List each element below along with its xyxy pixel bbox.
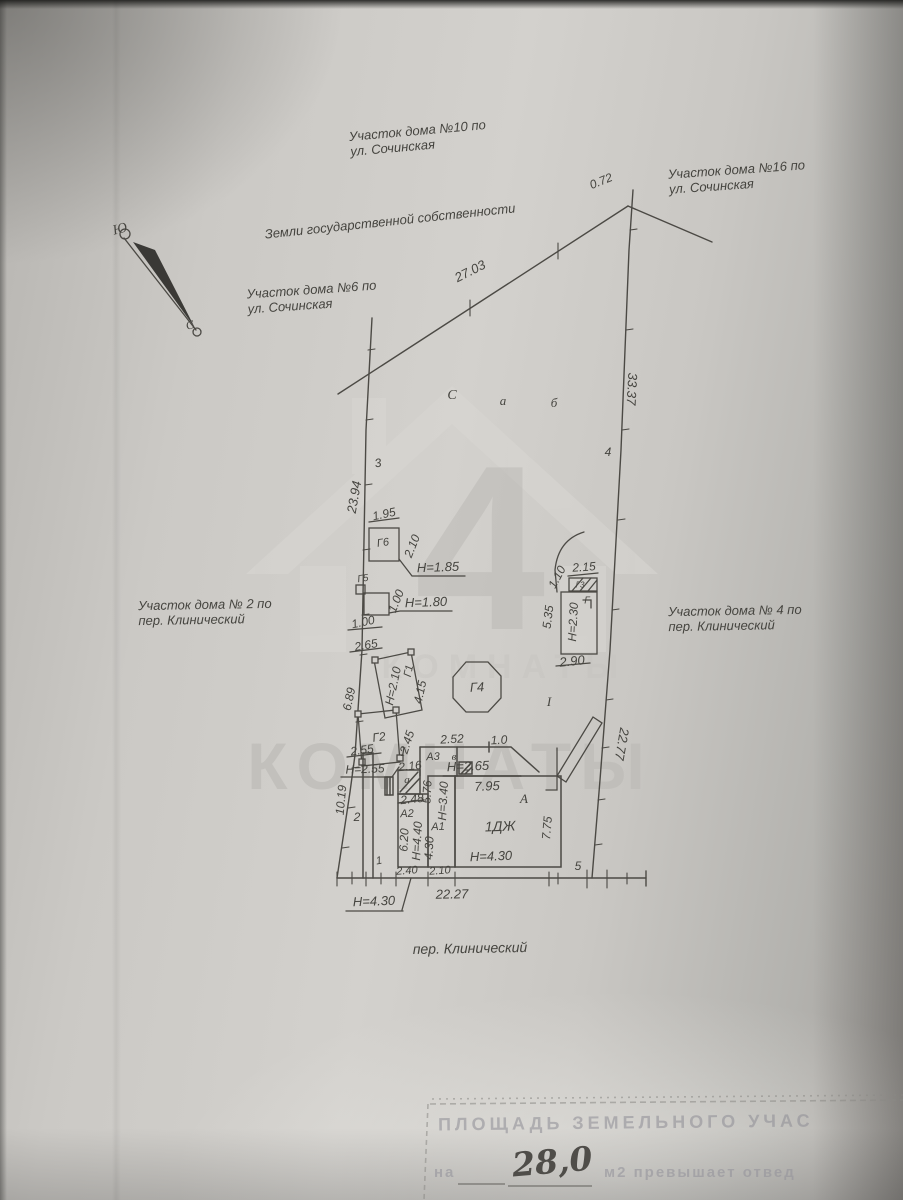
main-top-height: Н=2.65 (447, 758, 490, 774)
a1-width: 2.10 (429, 864, 451, 877)
a1-side-dim: 5.76 (419, 780, 434, 804)
a3-top-dim2: 1.0 (490, 733, 507, 748)
dim-10-19: 10.19 (333, 784, 350, 815)
main-block-letter: А (520, 791, 528, 807)
a1-length: 4.30 (421, 836, 436, 860)
a2-name: А2 (400, 808, 414, 820)
main-height: Н=4.30 (470, 848, 513, 864)
street-label: пер. Клинический (413, 939, 528, 957)
g5-name: Г5 (357, 573, 369, 585)
g1-name: Г1 (402, 664, 416, 678)
a1-height: Н=3.40 (435, 781, 451, 821)
g-right-width: 2.90 (559, 652, 586, 670)
parcel-2-label: Участок дома № 2 по пер. Клинический (138, 596, 272, 628)
main-top-dim: 7.95 (474, 778, 500, 794)
point-b: б (551, 395, 558, 411)
stamp-suffix: м2 превышает отвед (604, 1164, 796, 1181)
main-name: 1ДЖ (484, 817, 515, 834)
shed-a-name: а (404, 774, 410, 786)
point-5: 5 (575, 859, 582, 873)
part-mark-i-right: I (547, 694, 551, 710)
dim-22-27: 22.27 (436, 886, 469, 902)
stamp-area-value: 28,0 (510, 1139, 593, 1185)
point-c: С (447, 388, 456, 404)
scanned-site-plan-photo: 4 КОМНАТЫ КОМНАТЫ (0, 0, 903, 1200)
dim-33-37: 33.37 (624, 372, 641, 405)
g2-height: Н=2.55 (345, 761, 384, 776)
g4-name: Г4 (469, 679, 484, 695)
outbuilding-g-right (555, 532, 598, 666)
g5-height: Н=1.80 (405, 594, 448, 610)
g3-width: 2.15 (572, 559, 596, 575)
dim-5-35: 5.35 (540, 605, 557, 630)
g6-name: Г6 (376, 536, 390, 550)
point-4: 4 (605, 445, 612, 459)
stamp-blanks (458, 1184, 592, 1186)
g3-name: Г3 (576, 581, 585, 590)
ramp-shape (546, 717, 602, 790)
main-street-height: Н=4.30 (353, 893, 396, 909)
parcel-4-label: Участок дома № 4 по пер. Клинический (668, 602, 802, 634)
point-2: 2 (354, 810, 361, 824)
a3-width: 2.16 (398, 758, 423, 774)
stamp-prefix: на (434, 1164, 455, 1181)
g6-height: Н=1.85 (417, 559, 460, 575)
a2-width: 2.40 (396, 864, 418, 877)
a3-top-dim1: 2.52 (440, 731, 464, 746)
g-right-height: Н=2.30 (565, 602, 581, 642)
point-a: а (500, 393, 507, 409)
main-side-dim: 7.75 (539, 816, 555, 840)
a3-name: А3 (426, 751, 440, 763)
a1-name: А1 (431, 821, 445, 833)
g-right-name: Г (584, 596, 589, 607)
g2-name: Г2 (371, 729, 386, 745)
